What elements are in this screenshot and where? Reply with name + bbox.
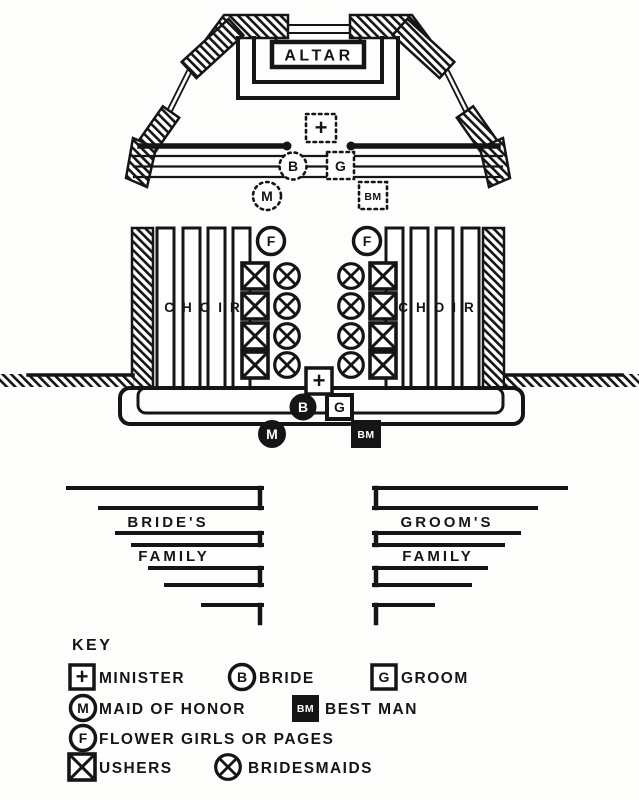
svg-text:BM: BM (297, 703, 314, 715)
maid-of-honor-position-steps: M (259, 421, 285, 447)
key-best-man-label: BEST MAN (325, 701, 418, 718)
svg-text:B: B (237, 669, 247, 685)
choir-left-label: CHOIR (164, 300, 248, 315)
bride-position-steps: B (291, 395, 316, 420)
bridesmaid-symbol (339, 294, 364, 319)
key-minister-label: MINISTER (99, 670, 185, 687)
groom-symbol: G (335, 158, 346, 174)
groom-position-altar: G (327, 152, 354, 179)
usher-symbol (370, 293, 396, 319)
key-best-man-symbol: BM (293, 696, 318, 721)
key-maid-of-honor-label: MAID OF HONOR (99, 701, 246, 718)
svg-text:G: G (379, 669, 390, 685)
bridesmaid-symbol (275, 353, 300, 378)
choir-left: CHOIR (132, 228, 250, 388)
svg-text:+: + (76, 664, 89, 689)
nave-wall-left (0, 374, 133, 387)
best-man-position-steps: BM (352, 421, 380, 447)
key-groom-symbol: G (372, 665, 396, 689)
usher-symbol (242, 293, 268, 319)
key-minister-symbol: + (70, 664, 94, 689)
bride-symbol: B (288, 158, 298, 174)
best-man-symbol: BM (357, 429, 374, 441)
usher-symbol (370, 352, 396, 378)
groom-symbol: G (334, 399, 345, 415)
choir-right: CHOIR (386, 228, 504, 388)
minister-symbol: + (313, 368, 326, 393)
grooms-family-label-1: GROOM'S (401, 514, 494, 531)
svg-text:M: M (77, 700, 89, 716)
usher-symbol (370, 263, 396, 289)
key-bridesmaid-symbol (216, 755, 241, 780)
altar-table: ALTAR (272, 42, 364, 67)
flower-symbol: F (363, 233, 372, 249)
minister-position-steps: + (306, 368, 332, 394)
bridesmaid-symbol (339, 324, 364, 349)
bride-position-altar: B (280, 153, 307, 180)
maid-of-honor-position-altar: M (253, 182, 281, 210)
wedding-ceremony-floor-plan: ALTAR + B G M BM (0, 0, 639, 800)
key: KEY + MINISTER B BRIDE G GROOM M MAI (69, 637, 469, 780)
key-bride-symbol: B (230, 665, 255, 690)
key-usher-symbol (69, 754, 95, 780)
bridesmaid-symbol (275, 324, 300, 349)
key-bridesmaids-label: BRIDESMAIDS (248, 760, 373, 777)
flower-girls-left: F (258, 228, 285, 255)
brides-family-pews: BRIDE'S FAMILY (68, 488, 262, 623)
groom-position-steps: G (327, 395, 352, 419)
usher-symbol (370, 323, 396, 349)
key-groom-label: GROOM (401, 670, 469, 687)
key-ushers-label: USHERS (99, 760, 173, 777)
bridesmaid-symbol (339, 353, 364, 378)
flower-symbol: F (267, 233, 276, 249)
usher-symbol (242, 263, 268, 289)
flower-girls-right: F (354, 228, 381, 255)
choir-right-label: CHOIR (398, 300, 482, 315)
maid-of-honor-symbol: M (266, 426, 278, 442)
bridesmaid-symbol (275, 294, 300, 319)
usher-symbol (242, 352, 268, 378)
church-diagram: ALTAR + B G M BM (0, 0, 639, 800)
key-maid-of-honor-symbol: M (71, 696, 96, 721)
minister-symbol: + (315, 115, 328, 140)
brides-family-label-1: BRIDE'S (127, 514, 208, 531)
key-title: KEY (72, 637, 112, 654)
best-man-symbol: BM (364, 191, 381, 203)
maid-of-honor-symbol: M (261, 188, 273, 204)
grooms-family-label-2: FAMILY (402, 548, 474, 565)
key-bride-label: BRIDE (259, 670, 315, 687)
brides-family-label-2: FAMILY (138, 548, 210, 565)
communion-rail (134, 142, 502, 178)
nave-wall-right (505, 374, 639, 387)
best-man-position-altar: BM (359, 182, 387, 209)
bridesmaid-symbol (339, 264, 364, 289)
altar-label: ALTAR (284, 48, 353, 65)
usher-symbol (242, 323, 268, 349)
bride-symbol: B (298, 399, 308, 415)
minister-position-altar: + (306, 114, 336, 142)
svg-text:F: F (79, 730, 88, 746)
bridesmaid-symbol (275, 264, 300, 289)
wedding-party: F F (242, 228, 396, 379)
grooms-family-pews: GROOM'S FAMILY (374, 488, 566, 623)
key-flower-label: FLOWER GIRLS OR PAGES (99, 731, 334, 748)
key-flower-symbol: F (71, 726, 96, 751)
